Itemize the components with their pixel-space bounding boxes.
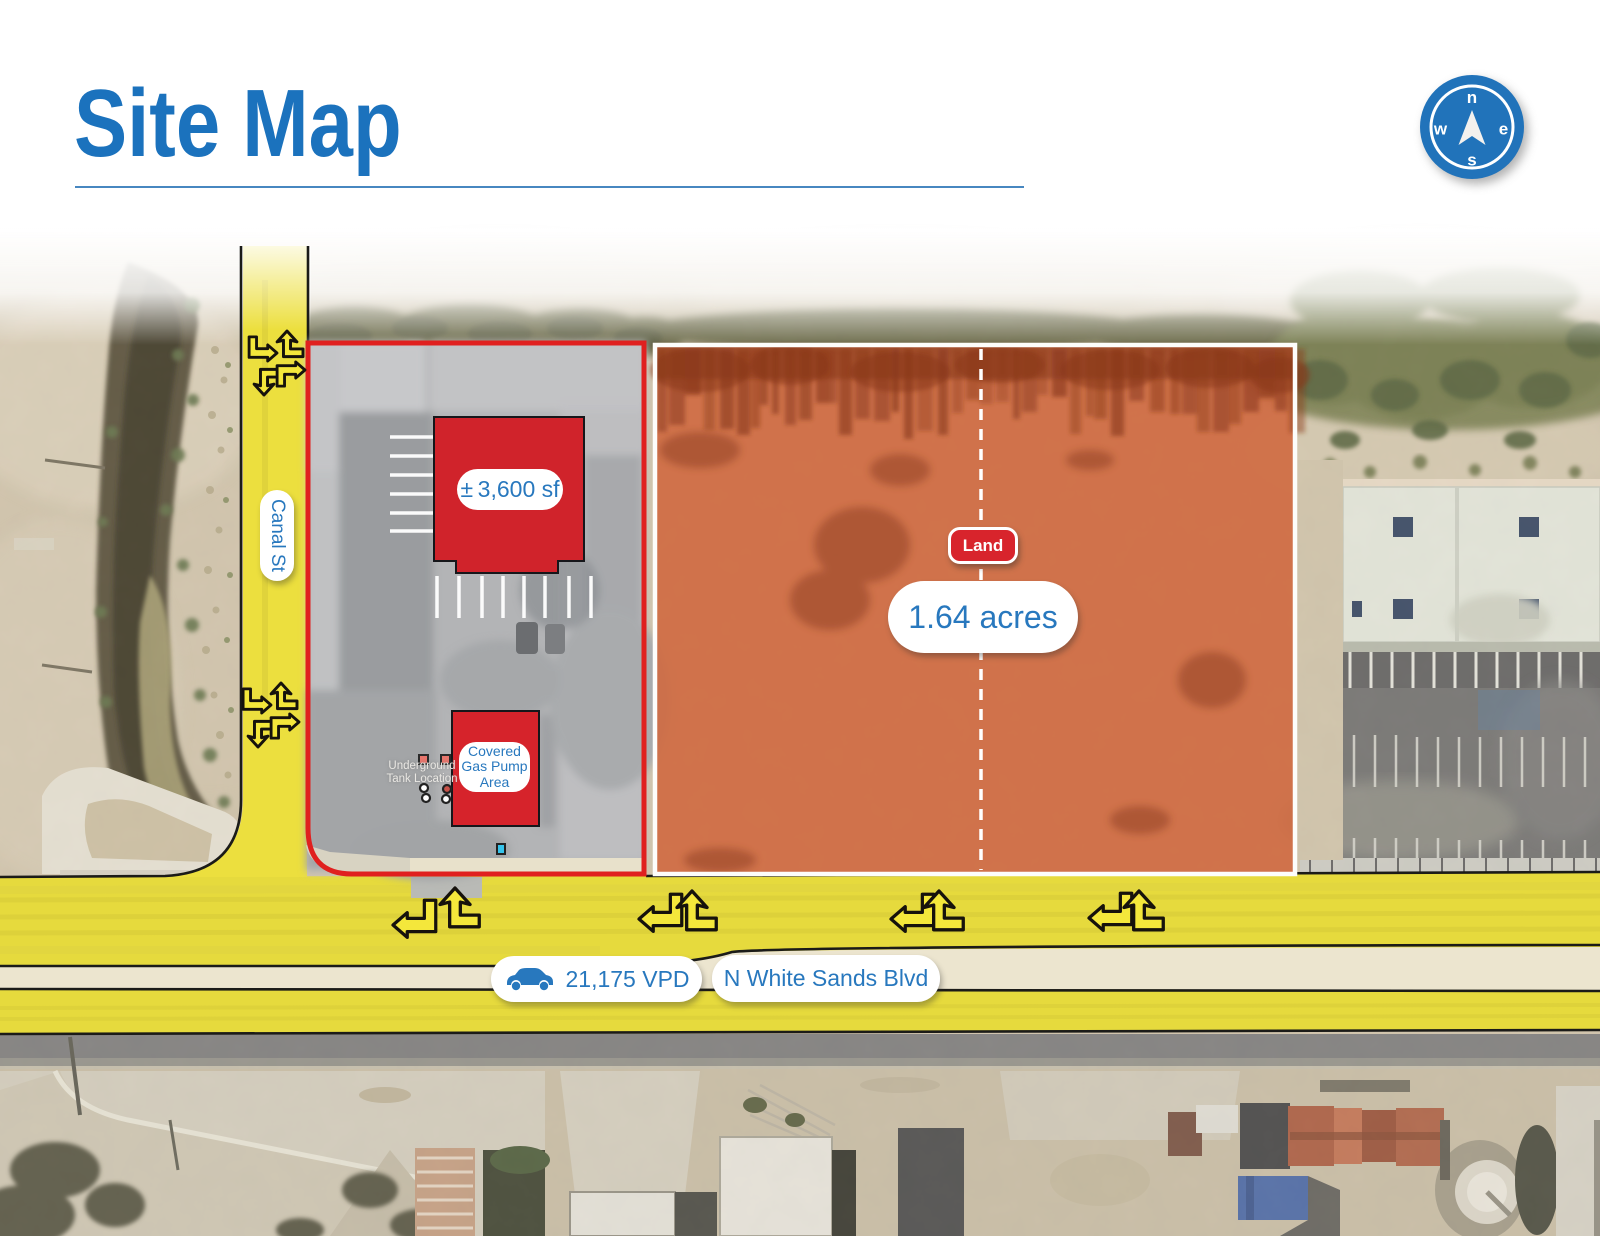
svg-text:s: s — [1467, 151, 1476, 170]
svg-text:n: n — [1467, 88, 1477, 107]
svg-text:e: e — [1499, 120, 1508, 139]
svg-text:w: w — [1433, 120, 1448, 139]
